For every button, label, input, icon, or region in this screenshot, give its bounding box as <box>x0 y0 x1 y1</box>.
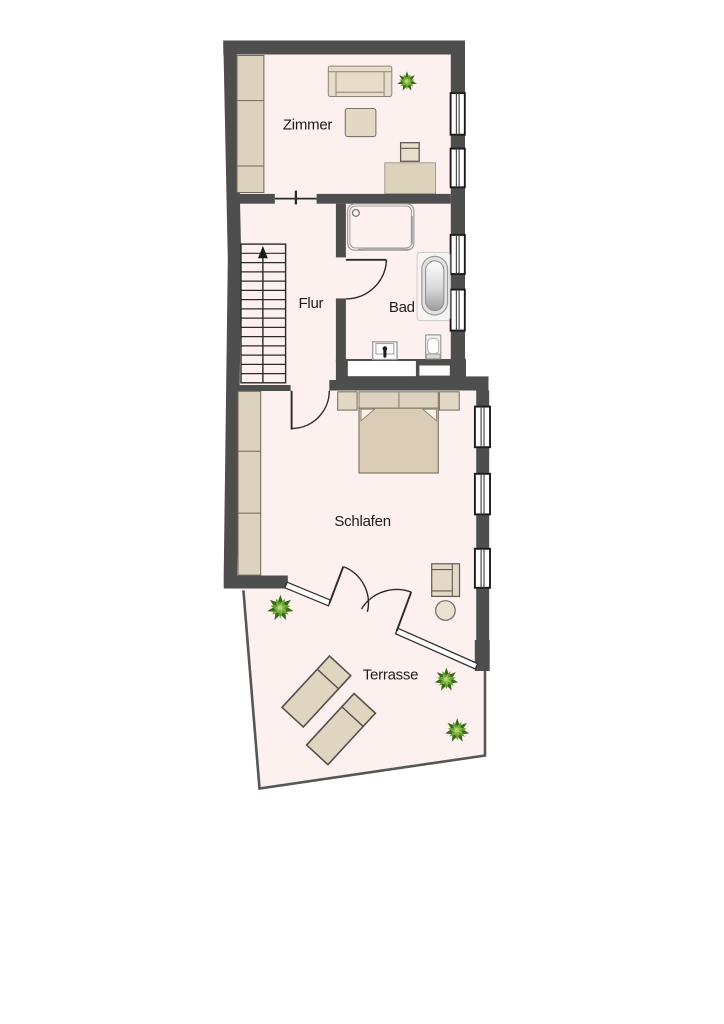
svg-text:Terrasse: Terrasse <box>363 667 419 684</box>
svg-text:Flur: Flur <box>298 295 323 312</box>
svg-text:Schlafen: Schlafen <box>334 513 390 530</box>
svg-text:Bad: Bad <box>389 299 415 316</box>
svg-text:Zimmer: Zimmer <box>283 117 333 134</box>
